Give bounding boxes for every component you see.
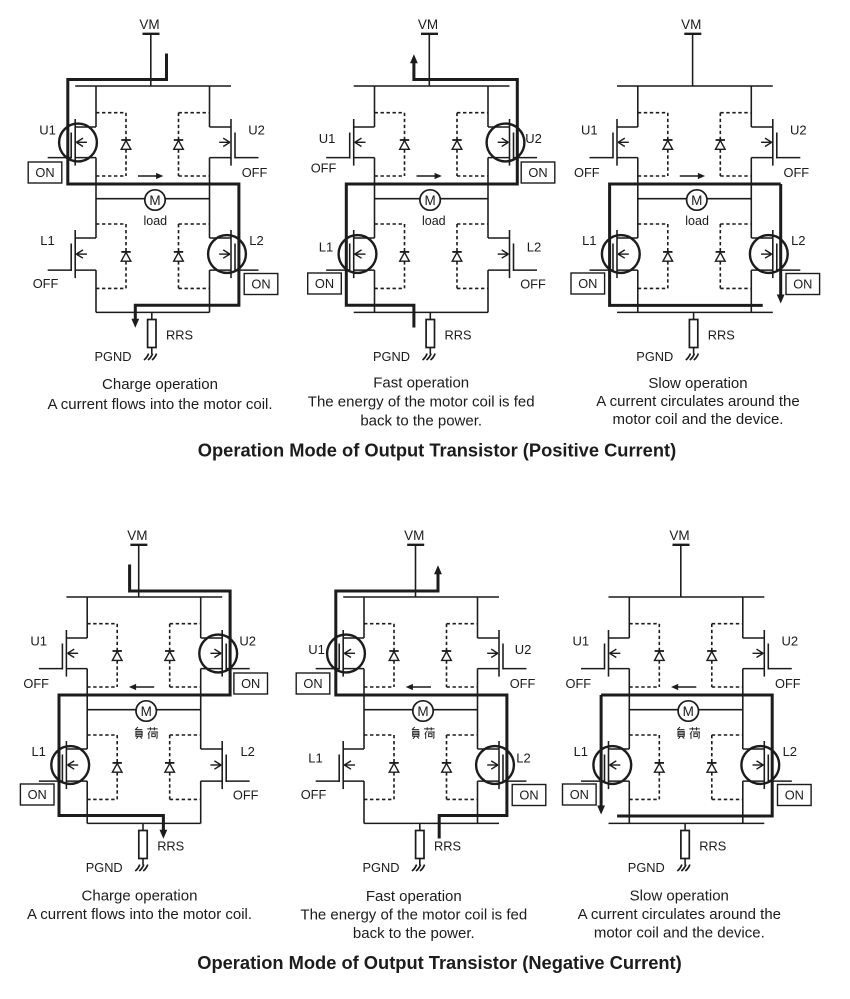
svg-text:RRS: RRS	[699, 839, 726, 854]
svg-text:U1: U1	[30, 634, 47, 649]
svg-text:Slow operation: Slow operation	[630, 888, 729, 905]
svg-text:L2: L2	[240, 744, 254, 759]
svg-text:L1: L1	[582, 233, 596, 248]
svg-text:Operation Mode of Output Trans: Operation Mode of Output Transistor (Neg…	[197, 952, 681, 973]
svg-text:RRS: RRS	[166, 328, 193, 343]
svg-text:L2: L2	[249, 233, 263, 248]
svg-text:OFF: OFF	[520, 277, 546, 292]
svg-text:back to the power.: back to the power.	[360, 413, 482, 430]
svg-text:ON: ON	[578, 276, 597, 291]
svg-text:ON: ON	[251, 277, 270, 292]
svg-text:RRS: RRS	[434, 839, 461, 854]
svg-text:U2: U2	[248, 123, 265, 138]
svg-text:M: M	[149, 193, 160, 208]
svg-text:ON: ON	[315, 276, 334, 291]
svg-text:PGND: PGND	[95, 349, 132, 364]
svg-text:The energy of the motor coil i: The energy of the motor coil is fed	[300, 907, 527, 924]
svg-text:OFF: OFF	[233, 788, 259, 803]
svg-text:RRS: RRS	[445, 328, 472, 343]
svg-text:U1: U1	[572, 634, 589, 649]
svg-text:U1: U1	[319, 131, 336, 146]
svg-text:ON: ON	[570, 787, 589, 802]
svg-text:U2: U2	[239, 634, 256, 649]
svg-text:U1: U1	[581, 123, 598, 138]
svg-text:Charge operation: Charge operation	[102, 376, 218, 393]
svg-text:VM: VM	[418, 17, 438, 32]
svg-text:OFF: OFF	[242, 165, 268, 180]
svg-text:L1: L1	[40, 233, 54, 248]
svg-text:RRS: RRS	[157, 839, 184, 854]
svg-text:A current flows into the motor: A current flows into the motor coil.	[27, 906, 252, 923]
svg-text:ON: ON	[528, 165, 547, 180]
svg-text:ON: ON	[303, 676, 322, 691]
svg-text:OFF: OFF	[301, 787, 327, 802]
svg-text:Charge operation: Charge operation	[82, 888, 198, 905]
svg-text:M: M	[141, 704, 152, 719]
svg-text:M: M	[691, 193, 702, 208]
svg-text:PGND: PGND	[628, 860, 665, 875]
svg-text:ON: ON	[28, 787, 47, 802]
svg-text:A current flows into the motor: A current flows into the motor coil.	[47, 396, 272, 413]
svg-text:Slow operation: Slow operation	[648, 375, 747, 392]
svg-text:L1: L1	[31, 744, 45, 759]
svg-text:L2: L2	[791, 233, 805, 248]
svg-text:M: M	[417, 704, 428, 719]
svg-text:VM: VM	[669, 528, 689, 543]
svg-text:L1: L1	[319, 240, 333, 255]
svg-text:U2: U2	[790, 123, 807, 138]
svg-text:VM: VM	[681, 17, 701, 32]
svg-text:RRS: RRS	[708, 328, 735, 343]
svg-text:back to the power.: back to the power.	[353, 925, 475, 942]
svg-text:motor coil and the device.: motor coil and the device.	[594, 925, 765, 942]
svg-text:VM: VM	[404, 528, 424, 543]
svg-text:load: load	[422, 214, 446, 228]
svg-text:A current circulates around th: A current circulates around the	[578, 906, 781, 923]
svg-text:L2: L2	[527, 240, 541, 255]
svg-text:OFF: OFF	[33, 276, 59, 291]
svg-text:M: M	[424, 193, 435, 208]
svg-text:VM: VM	[127, 528, 147, 543]
svg-text:OFF: OFF	[23, 676, 49, 691]
svg-text:U1: U1	[39, 123, 56, 138]
svg-text:L2: L2	[783, 744, 797, 759]
svg-text:L2: L2	[516, 751, 530, 766]
svg-text:ON: ON	[35, 165, 54, 180]
svg-text:OFF: OFF	[784, 165, 810, 180]
svg-text:PGND: PGND	[373, 349, 410, 364]
svg-text:Fast operation: Fast operation	[373, 375, 469, 392]
svg-text:OFF: OFF	[775, 676, 801, 691]
svg-text:OFF: OFF	[510, 676, 536, 691]
svg-text:ON: ON	[519, 788, 538, 803]
svg-text:The energy of the motor coil i: The energy of the motor coil is fed	[308, 393, 535, 410]
svg-text:motor coil and the device.: motor coil and the device.	[613, 411, 784, 428]
svg-text:U2: U2	[515, 642, 532, 657]
svg-text:L1: L1	[308, 751, 322, 766]
svg-text:PGND: PGND	[86, 860, 123, 875]
svg-text:L1: L1	[574, 744, 588, 759]
svg-text:Fast operation: Fast operation	[366, 888, 462, 905]
svg-text:ON: ON	[241, 676, 260, 691]
svg-text:U1: U1	[308, 642, 325, 657]
svg-text:VM: VM	[139, 17, 159, 32]
svg-text:PGND: PGND	[636, 349, 673, 364]
svg-text:load: load	[143, 214, 167, 228]
svg-text:OFF: OFF	[311, 161, 337, 176]
svg-text:ON: ON	[793, 277, 812, 292]
svg-text:ON: ON	[785, 788, 804, 803]
svg-text:U2: U2	[781, 634, 798, 649]
svg-text:Operation Mode of Output Trans: Operation Mode of Output Transistor (Pos…	[198, 440, 676, 461]
svg-text:load: load	[685, 214, 709, 228]
svg-text:OFF: OFF	[566, 676, 592, 691]
svg-text:M: M	[683, 704, 694, 719]
svg-text:PGND: PGND	[363, 860, 400, 875]
svg-text:U2: U2	[525, 131, 542, 146]
svg-text:A current circulates around th: A current circulates around the	[596, 393, 799, 410]
svg-text:OFF: OFF	[574, 165, 600, 180]
